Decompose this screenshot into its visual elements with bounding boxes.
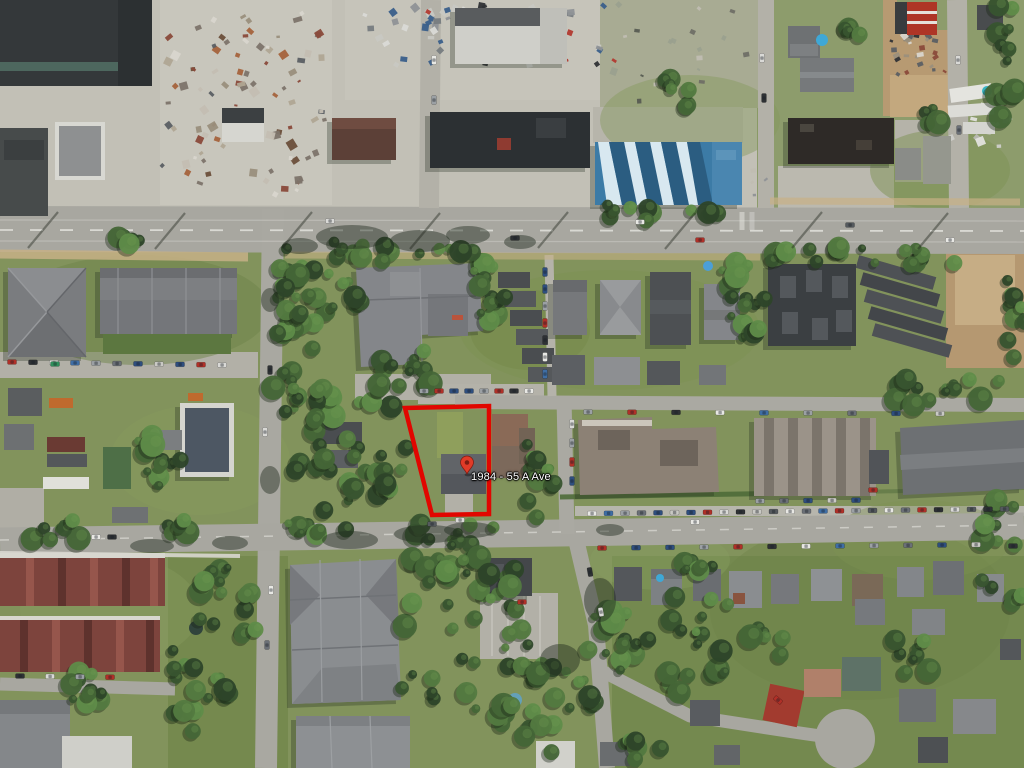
map-marker-icon[interactable] xyxy=(461,456,474,476)
satellite-map-viewport[interactable]: 1984 - 55 A Ave xyxy=(0,0,1024,768)
parcel-overlay xyxy=(0,0,1024,768)
parcel-outline xyxy=(405,406,489,515)
